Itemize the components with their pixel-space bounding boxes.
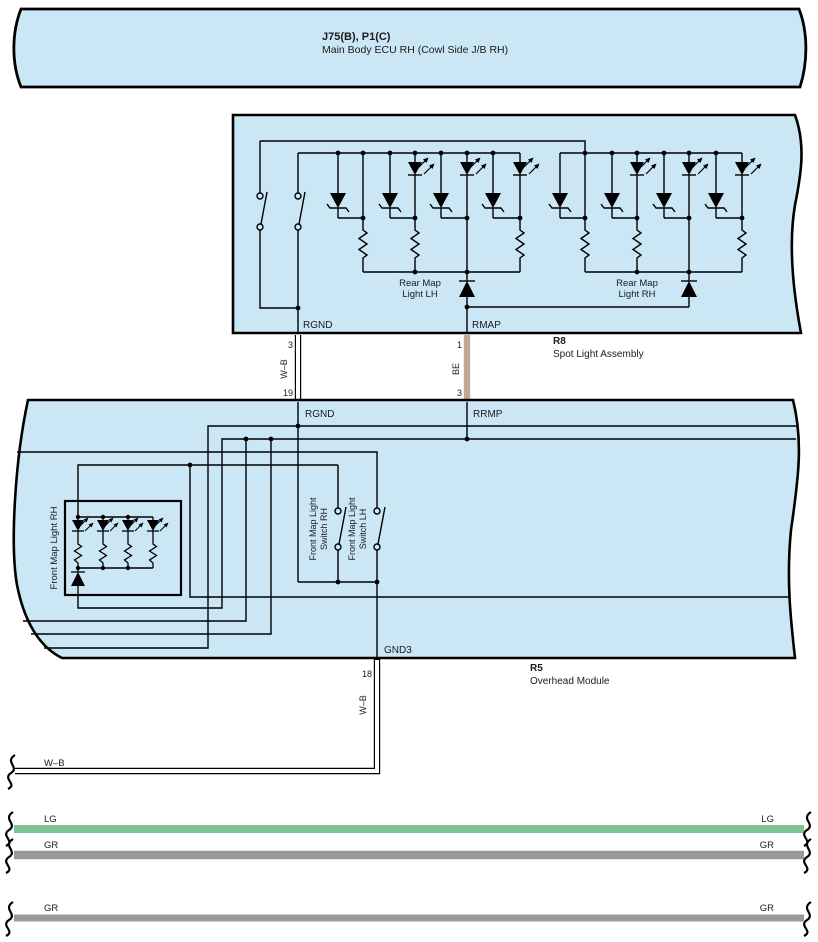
pin-number: 18 <box>362 669 372 679</box>
switch-label-front-map-lh: Front Map Light <box>347 497 357 561</box>
wire-w-b-rgnd: 3 W–B 19 <box>279 335 298 399</box>
band-gr-2: GR GR <box>6 902 811 936</box>
wire-break-icon <box>6 902 13 936</box>
lamp-label-rear-map-lh: Rear Map <box>399 278 441 289</box>
pin-label-rgnd: RGND <box>303 320 332 331</box>
connector-box-r5-overhead-module: RGND RRMP GND3 Front Map Light RH Front … <box>14 400 799 687</box>
switch-label-front-map-rh: Switch RH <box>319 508 329 550</box>
wire-break-icon <box>804 902 811 936</box>
pin-number: 19 <box>283 388 293 398</box>
band-label-left: GR <box>44 840 58 851</box>
wire-break-icon <box>8 755 15 789</box>
wire-color-label: W–B <box>358 695 368 715</box>
connector-box-r8-spot-light-assembly: Rear Map Light LH Rear Map Light RH RGND… <box>233 115 802 360</box>
component-name: Overhead Module <box>530 676 610 687</box>
wire-color-label: W–B <box>279 359 289 379</box>
component-name: Spot Light Assembly <box>553 349 644 360</box>
band-gr: GR GR <box>6 839 811 873</box>
pin-number: 3 <box>288 340 293 350</box>
pin-label-rgnd: RGND <box>305 409 334 420</box>
component-code: R5 <box>530 663 543 674</box>
connector-band-main-body-ecu: J75(B), P1(C) Main Body ECU RH (Cowl Sid… <box>14 9 806 87</box>
pin-label-gnd3: GND3 <box>384 645 412 656</box>
pin-label-rmap: RMAP <box>472 320 501 331</box>
component-code: R8 <box>553 336 566 347</box>
lamp-label-rear-map-rh: Light RH <box>619 289 656 300</box>
lamp-label-front-map-light-rh: Front Map Light RH <box>49 506 60 589</box>
wire-w-b-gnd3: 18 W–B W–B <box>8 659 377 789</box>
lamp-label-rear-map-lh: Light LH <box>402 289 438 300</box>
connector-title: J75(B), P1(C) <box>322 31 391 43</box>
band-label-left: LG <box>44 814 57 825</box>
connector-subtitle: Main Body ECU RH (Cowl Side J/B RH) <box>322 44 508 56</box>
wiring-diagram-page: J75(B), P1(C) Main Body ECU RH (Cowl Sid… <box>0 0 818 942</box>
switch-label-front-map-lh: Switch LH <box>358 509 368 550</box>
band-label-right: GR <box>760 903 774 914</box>
band-lg: LG LG <box>6 812 811 846</box>
pin-label-rrmp: RRMP <box>473 409 503 420</box>
wire-color-label: BE <box>451 363 461 375</box>
pin-number: 3 <box>457 388 462 398</box>
lamp-label-rear-map-rh: Rear Map <box>616 278 658 289</box>
switch-label-front-map-rh: Front Map Light <box>308 497 318 561</box>
box-shape <box>233 115 802 333</box>
wire-be-rmap: 1 BE 3 <box>451 335 467 399</box>
wire-color-label: W–B <box>44 758 65 769</box>
pin-number: 1 <box>457 340 462 350</box>
band-label-right: LG <box>761 814 774 825</box>
band-label-right: GR <box>760 840 774 851</box>
band-label-left: GR <box>44 903 58 914</box>
